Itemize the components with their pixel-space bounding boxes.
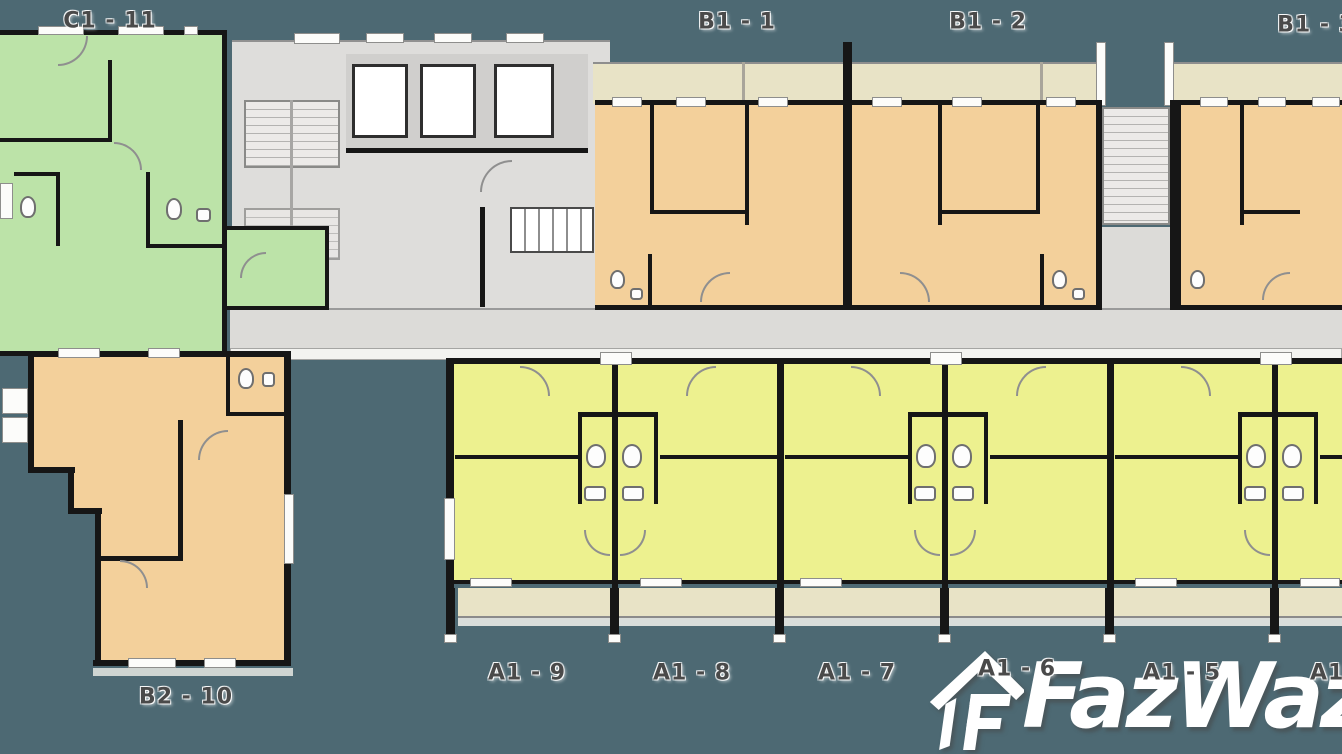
wall: [1238, 412, 1318, 417]
wall: [908, 412, 988, 417]
wall: [226, 412, 284, 416]
balcony-box: [2, 417, 28, 443]
fixture-toilet: [586, 444, 606, 468]
ground-fringe: [458, 618, 1342, 626]
unit-label-b1-2: B1 - 2: [949, 10, 1027, 35]
wall: [56, 172, 60, 246]
wall-fin: [446, 588, 455, 640]
window: [128, 658, 176, 668]
wall: [984, 412, 988, 504]
wall-fin: [610, 588, 619, 640]
fixture-sink: [1282, 486, 1304, 501]
fixture-sink: [952, 486, 974, 501]
wall: [938, 210, 1040, 214]
elevator-shaft: [420, 64, 476, 138]
wall: [178, 420, 183, 560]
wall-unit-divider: [1107, 364, 1114, 588]
elevator-shaft: [352, 64, 408, 138]
stair-gap: [1106, 60, 1166, 104]
wall: [745, 105, 749, 225]
wall: [650, 105, 654, 213]
fixture-toilet: [1246, 444, 1266, 468]
wall: [578, 412, 582, 504]
fixture-sink: [1244, 486, 1266, 501]
wall: [650, 210, 749, 214]
wall: [226, 357, 230, 415]
wall: [455, 455, 578, 459]
window: [1135, 578, 1177, 587]
wall-unit-divider: [777, 364, 784, 588]
stair-rail-wall: [1096, 42, 1106, 106]
fixture-sink: [262, 372, 275, 387]
wall-fin: [1105, 588, 1114, 640]
fixture-toilet: [1052, 270, 1067, 289]
wall-fin-cap: [608, 634, 621, 643]
wall: [68, 467, 74, 514]
unit-label-a1-4: A1 - 4: [1310, 661, 1342, 686]
wall: [654, 412, 658, 504]
wall: [908, 412, 912, 504]
window: [872, 97, 902, 107]
window: [366, 33, 404, 43]
wall-fin-cap: [938, 634, 951, 643]
wall: [1240, 210, 1300, 214]
fixture-toilet: [610, 270, 625, 289]
window: [676, 97, 706, 107]
wall-unit-divider: [843, 100, 852, 310]
window: [434, 33, 472, 43]
wall: [95, 508, 101, 666]
unit-label-b2-10: B2 - 10: [139, 685, 233, 710]
wall: [1115, 455, 1238, 459]
balcony-divider: [742, 62, 745, 102]
window: [58, 348, 100, 358]
fixture-sink: [196, 208, 211, 222]
window: [1258, 97, 1286, 107]
fixture-toilet: [1282, 444, 1302, 468]
wall-fin-cap: [1103, 634, 1116, 643]
window: [0, 183, 13, 219]
wall-fin-cap: [773, 634, 786, 643]
unit-label-b1-1: B1 - 1: [698, 10, 776, 35]
window: [1046, 97, 1076, 107]
window: [148, 348, 180, 358]
unit-label-a1-8: A1 - 8: [653, 661, 731, 686]
window: [612, 97, 642, 107]
unit-label-a1-9: A1 - 9: [488, 661, 566, 686]
wall: [938, 105, 942, 225]
vent-box: [930, 352, 962, 365]
wall: [0, 138, 112, 142]
wall-fin: [940, 588, 949, 640]
window: [1312, 97, 1340, 107]
wall: [1320, 455, 1342, 459]
vent-box: [600, 352, 632, 365]
unit-label-a1-6: A1 - 6: [978, 657, 1056, 682]
wall-fin-cap: [444, 634, 457, 643]
wall: [97, 556, 183, 561]
unit-label-b1-3: B1 - 3: [1277, 13, 1342, 38]
wall-unit-divider: [1272, 364, 1278, 588]
floorplan-image: FazWaz C1 - 11 B1 - 1 B1 - 2 B1 - 3 B2 -…: [0, 0, 1342, 754]
window: [758, 97, 788, 107]
vent-box: [1260, 352, 1292, 365]
fixture-toilet: [1190, 270, 1205, 289]
unit-c1-11-area: [0, 30, 227, 356]
mailbox-unit: [510, 207, 594, 253]
unit-label-a1-5: A1 - 5: [1143, 661, 1221, 686]
fixture-sink: [630, 288, 643, 300]
window: [284, 494, 294, 564]
unit-label-c1-11: C1 - 11: [63, 9, 157, 34]
fixture-sink: [584, 486, 606, 501]
window: [506, 33, 544, 43]
wall: [990, 455, 1107, 459]
window: [470, 578, 512, 587]
wall: [1040, 254, 1044, 310]
wall: [1314, 412, 1318, 504]
wall: [1240, 105, 1244, 225]
corridor: [230, 308, 1342, 352]
staircase-secondary: [1102, 107, 1170, 225]
stair-rail-wall: [1164, 42, 1174, 106]
fixture-toilet: [20, 196, 36, 218]
wall: [1238, 412, 1242, 504]
window: [952, 97, 982, 107]
wall: [480, 207, 485, 307]
window: [444, 498, 455, 560]
window: [1200, 97, 1228, 107]
window: [800, 578, 842, 587]
wall: [28, 351, 34, 473]
wall: [843, 42, 852, 102]
wall: [785, 455, 908, 459]
balcony-box: [2, 388, 28, 414]
stair-vestibule: [1102, 227, 1170, 308]
window: [1300, 578, 1340, 587]
elevator-shaft: [494, 64, 554, 138]
window: [204, 658, 236, 668]
wall: [660, 455, 777, 459]
wall: [146, 172, 150, 246]
wall-fin-cap: [1268, 634, 1281, 643]
wall: [648, 254, 652, 310]
fixture-toilet: [952, 444, 972, 468]
wall-unit-divider: [612, 364, 618, 588]
wall: [1036, 105, 1040, 213]
wall: [578, 412, 658, 417]
window: [294, 33, 340, 44]
fixture-sink: [1072, 288, 1085, 300]
wall: [146, 244, 227, 248]
fixture-sink: [914, 486, 936, 501]
wall-fin: [1270, 588, 1279, 640]
wall-unit-divider: [942, 364, 948, 588]
wall: [108, 60, 112, 142]
ground-fringe: [93, 668, 293, 676]
balcony-divider: [1040, 62, 1043, 102]
window: [184, 26, 198, 35]
fixture-toilet: [622, 444, 642, 468]
fixture-toilet: [166, 198, 182, 220]
fixture-toilet: [238, 368, 254, 389]
fixture-toilet: [916, 444, 936, 468]
balcony-strip-bottom: [458, 588, 1342, 618]
window: [640, 578, 682, 587]
fixture-sink: [622, 486, 644, 501]
wall: [93, 660, 291, 666]
wall: [346, 148, 588, 153]
wall-fin: [775, 588, 784, 640]
unit-b2-10-area: [97, 514, 288, 664]
unit-label-a1-7: A1 - 7: [818, 661, 896, 686]
wall: [14, 172, 58, 176]
